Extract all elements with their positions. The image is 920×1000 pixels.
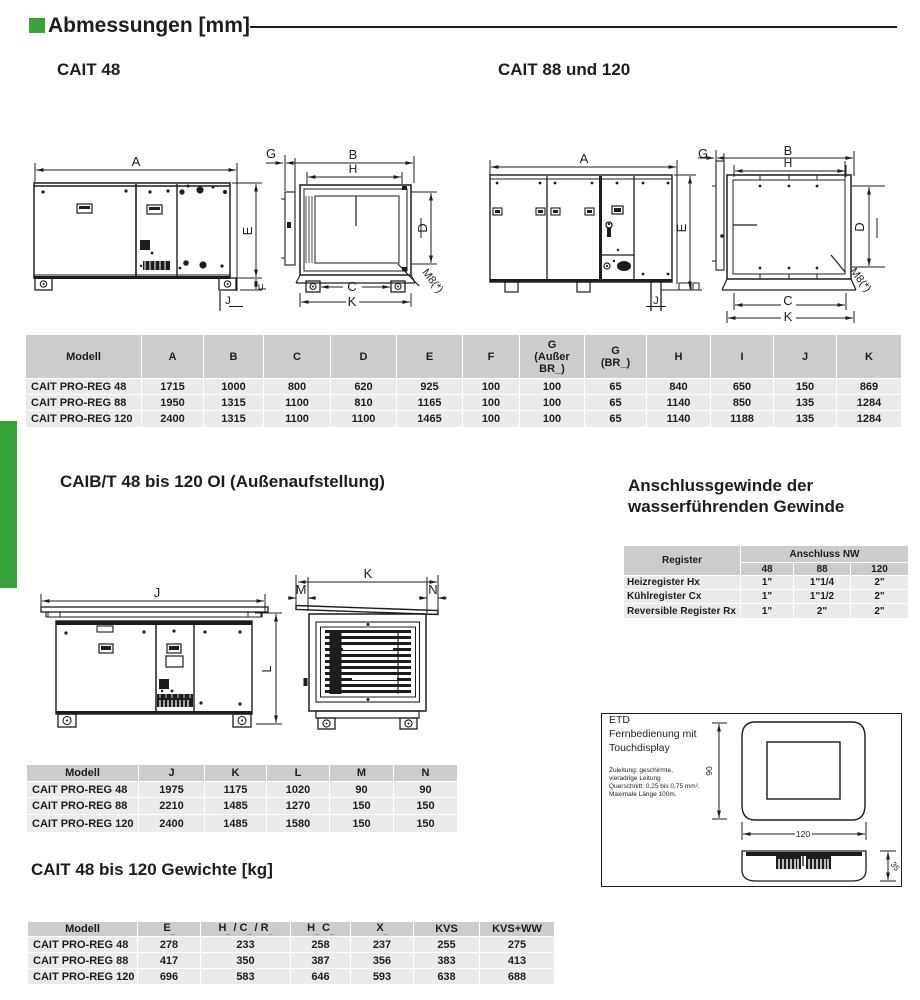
svg-text:D: D bbox=[415, 223, 430, 232]
svg-text:Fernbedienung mit: Fernbedienung mit bbox=[609, 728, 697, 740]
svg-text:K: K bbox=[784, 309, 793, 324]
svg-text:B: B bbox=[349, 147, 358, 162]
svg-text:Zuleitung: geschirmte,: Zuleitung: geschirmte, bbox=[609, 767, 673, 774]
svg-text:A: A bbox=[580, 151, 589, 166]
svg-text:ETD: ETD bbox=[609, 714, 630, 726]
svg-text:L: L bbox=[259, 665, 274, 672]
svg-text:vieradrige Leitung: vieradrige Leitung bbox=[609, 775, 661, 782]
svg-text:J: J bbox=[653, 295, 659, 307]
svg-text:H: H bbox=[349, 162, 358, 176]
svg-text:A: A bbox=[132, 154, 141, 169]
svg-text:F: F bbox=[257, 283, 269, 290]
svg-text:N: N bbox=[428, 582, 437, 597]
svg-text:G: G bbox=[698, 146, 708, 161]
svg-text:120: 120 bbox=[796, 829, 810, 839]
svg-text:H: H bbox=[784, 156, 793, 170]
svg-text:Maximale Länge 100m.: Maximale Länge 100m. bbox=[609, 791, 677, 798]
svg-text:G: G bbox=[266, 146, 276, 161]
svg-text:E: E bbox=[240, 226, 255, 235]
svg-text:J: J bbox=[154, 585, 161, 600]
svg-text:D: D bbox=[852, 222, 867, 231]
svg-text:E: E bbox=[674, 223, 689, 232]
svg-text:Touchdisplay: Touchdisplay bbox=[609, 742, 670, 754]
svg-text:M: M bbox=[296, 582, 307, 597]
svg-text:K: K bbox=[364, 566, 373, 581]
svg-text:35: 35 bbox=[889, 860, 902, 873]
svg-text:90: 90 bbox=[704, 766, 714, 776]
svg-text:J: J bbox=[225, 295, 231, 307]
svg-text:K: K bbox=[348, 294, 357, 309]
svg-text:M8(*): M8(*) bbox=[419, 267, 445, 296]
svg-text:Querschnitt: 0,25 bis 0,75 mm²: Querschnitt: 0,25 bis 0,75 mm², bbox=[609, 783, 700, 790]
svg-text:C: C bbox=[347, 279, 356, 294]
svg-text:C: C bbox=[783, 293, 792, 308]
